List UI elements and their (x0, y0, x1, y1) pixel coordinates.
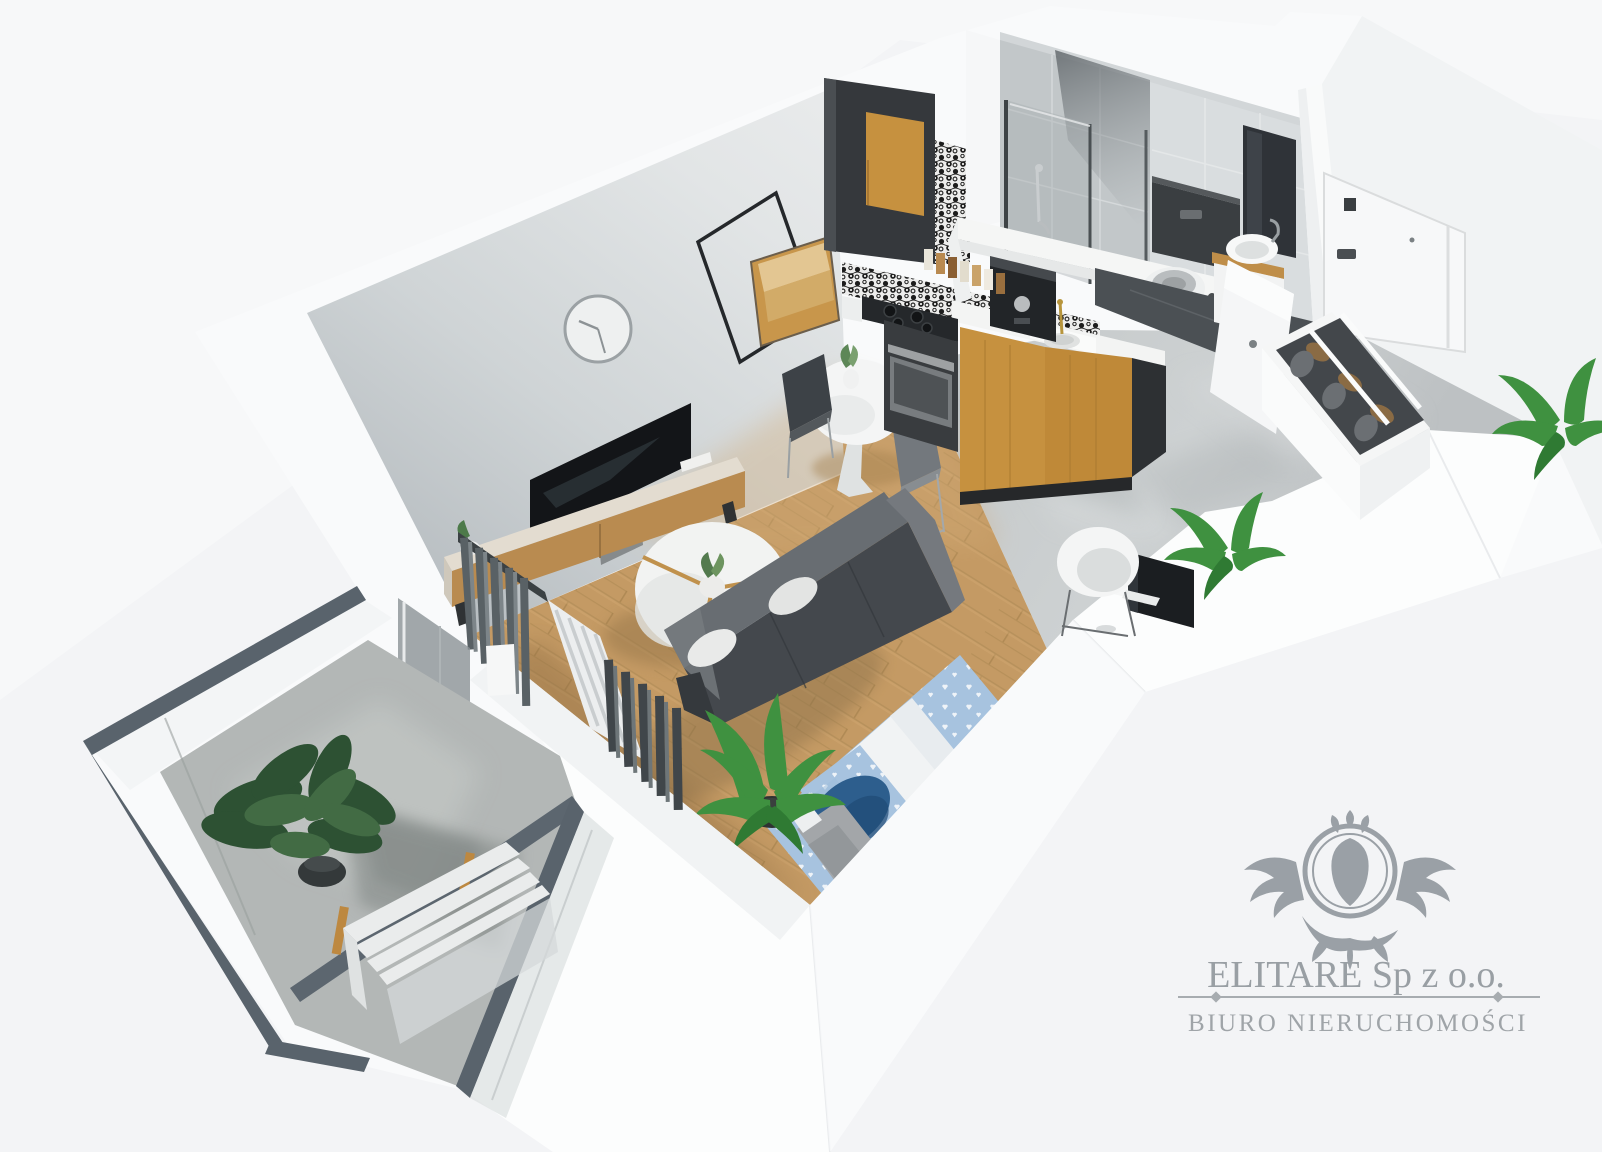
svg-text:BIURO NIERUCHOMOŚCI: BIURO NIERUCHOMOŚCI (1188, 1009, 1528, 1037)
svg-text:ELITARE Sp z o.o.: ELITARE Sp z o.o. (1207, 954, 1505, 996)
